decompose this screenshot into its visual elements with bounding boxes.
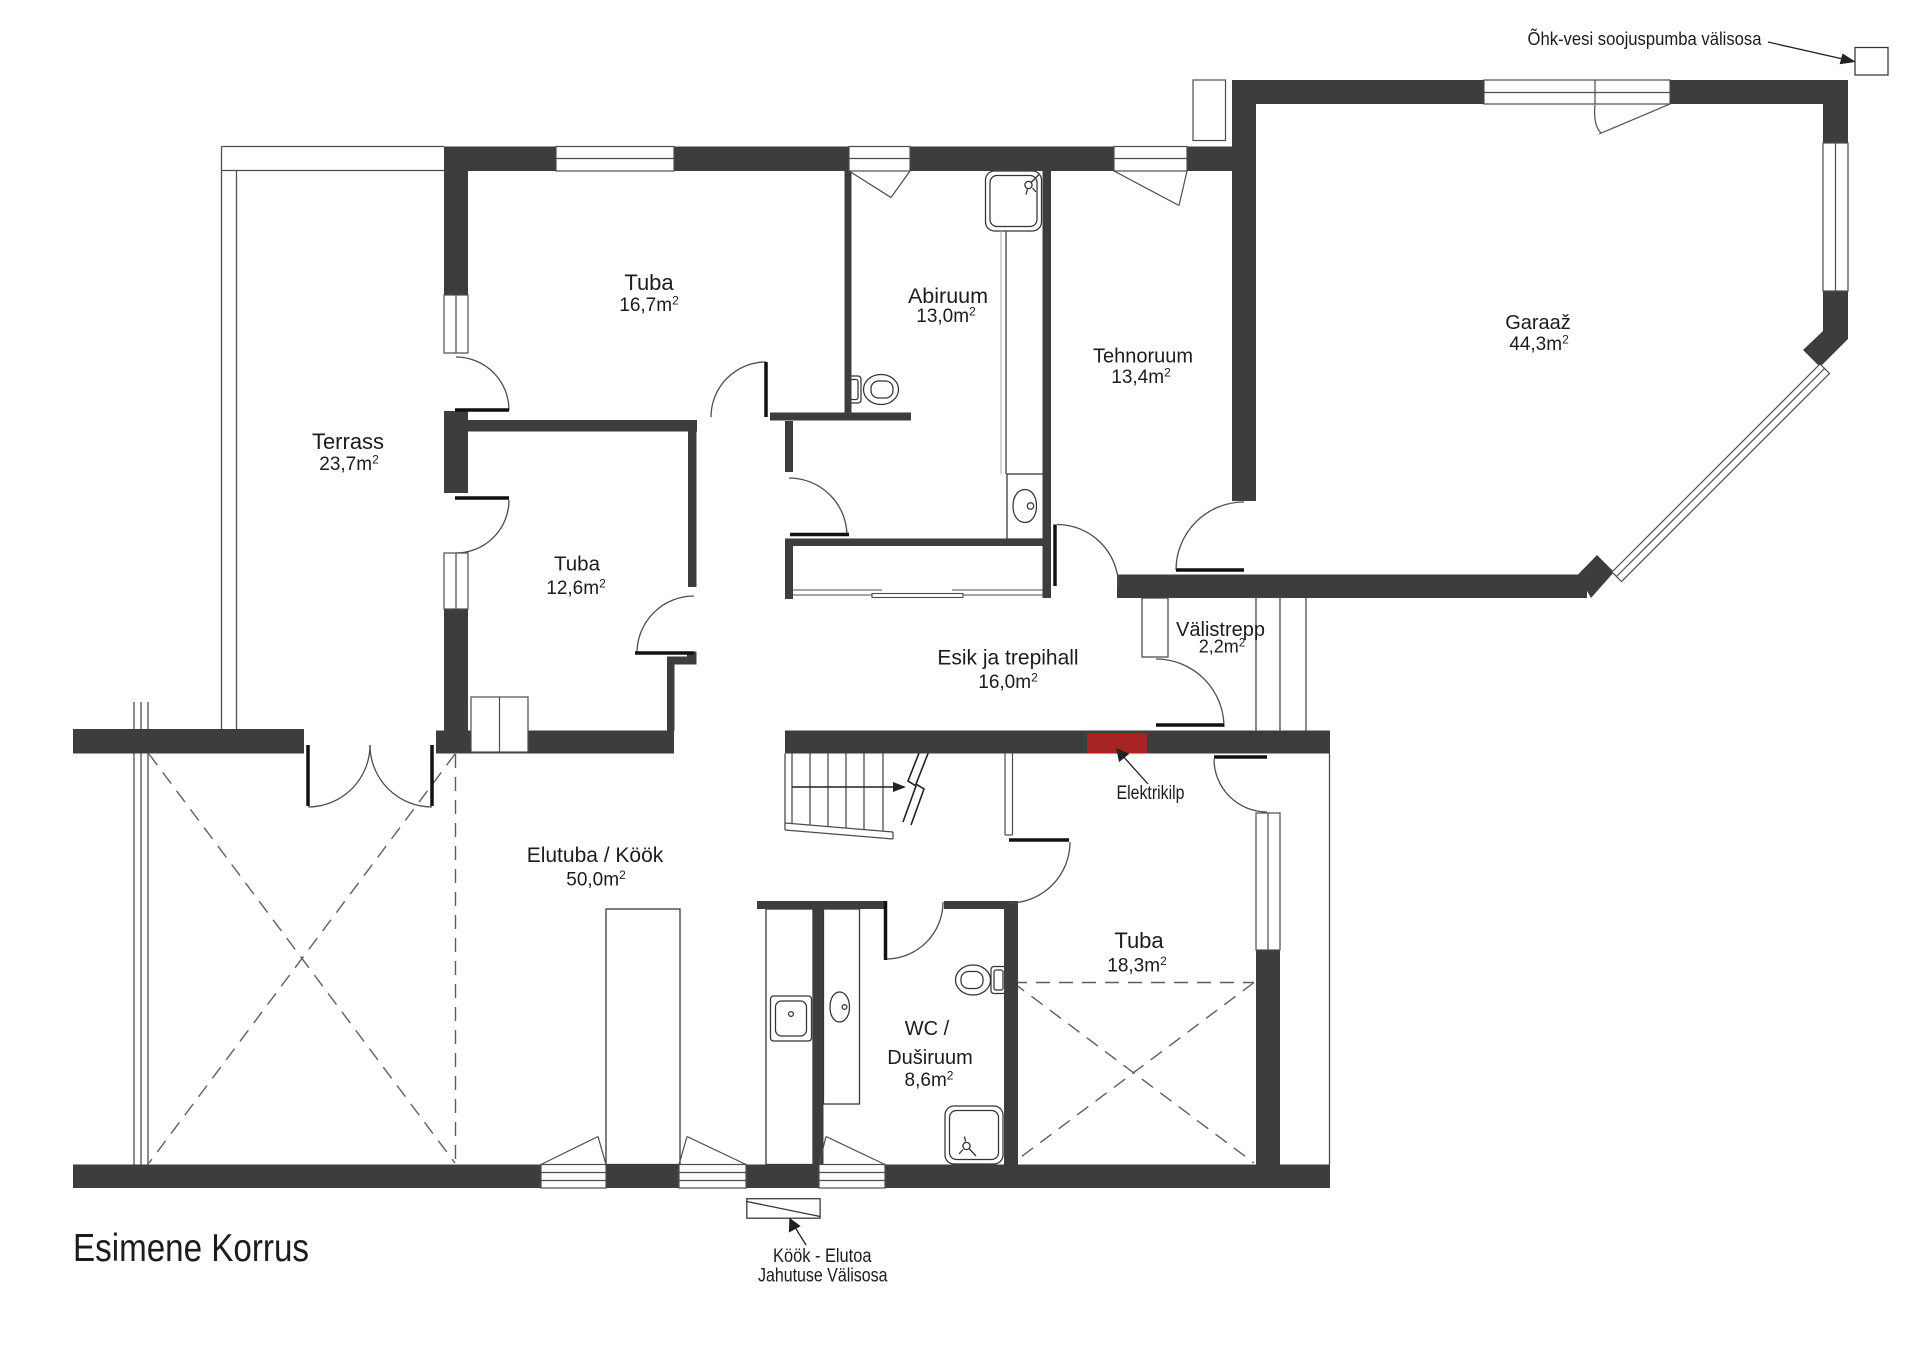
svg-text:8,6m2: 8,6m2 [905, 1069, 954, 1092]
svg-text:Jahutuse Välisosa: Jahutuse Välisosa [758, 1266, 888, 1287]
svg-text:Õhk-vesi soojuspumba välisosa: Õhk-vesi soojuspumba välisosa [1528, 28, 1763, 49]
svg-text:Garaaž: Garaaž [1505, 312, 1571, 334]
svg-text:13,0m2: 13,0m2 [916, 305, 976, 328]
svg-text:Duširuum: Duširuum [887, 1047, 973, 1069]
svg-text:2,2m2: 2,2m2 [1199, 637, 1245, 657]
svg-text:13,4m2: 13,4m2 [1111, 366, 1171, 389]
svg-text:Elutuba / Köök: Elutuba / Köök [527, 844, 664, 867]
svg-text:Tuba: Tuba [624, 270, 674, 295]
svg-text:44,3m2: 44,3m2 [1509, 333, 1569, 356]
svg-text:Esimene Korrus: Esimene Korrus [73, 1227, 309, 1270]
svg-text:WC /: WC / [905, 1018, 950, 1040]
svg-text:Esik ja trepihall: Esik ja trepihall [937, 647, 1078, 670]
svg-text:Elektrikilp: Elektrikilp [1117, 783, 1185, 804]
svg-text:16,0m2: 16,0m2 [978, 671, 1038, 694]
svg-text:50,0m2: 50,0m2 [566, 868, 626, 891]
svg-text:23,7m2: 23,7m2 [319, 453, 379, 476]
svg-text:Tuba: Tuba [554, 553, 601, 576]
svg-text:Tuba: Tuba [1114, 928, 1164, 953]
svg-text:Tehnoruum: Tehnoruum [1093, 346, 1193, 368]
svg-text:12,6m2: 12,6m2 [546, 577, 606, 600]
svg-text:Abiruum: Abiruum [908, 284, 988, 308]
svg-text:16,7m2: 16,7m2 [619, 294, 679, 317]
svg-text:Köök - Elutoa: Köök - Elutoa [773, 1246, 872, 1267]
svg-text:18,3m2: 18,3m2 [1107, 954, 1167, 977]
svg-text:Terrass: Terrass [312, 429, 384, 454]
